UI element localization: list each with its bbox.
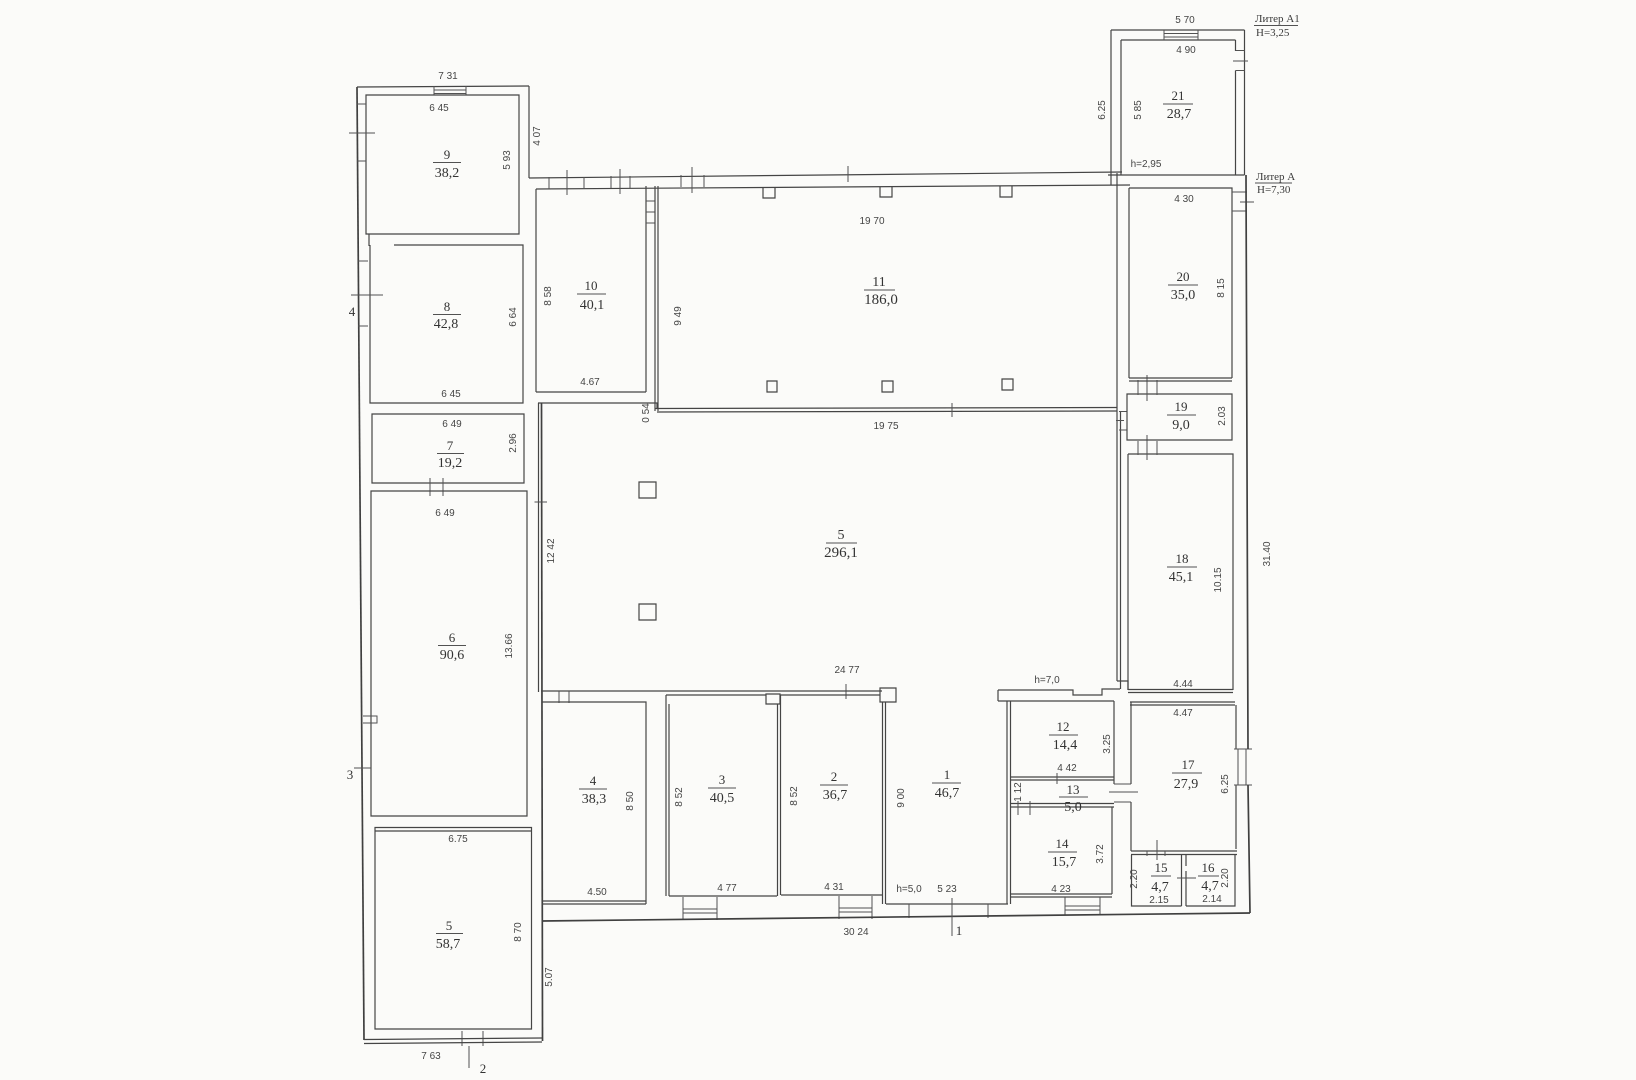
svg-text:5 93: 5 93: [502, 150, 513, 170]
svg-text:6 49: 6 49: [442, 419, 462, 430]
svg-text:1: 1: [944, 767, 951, 782]
svg-text:45,1: 45,1: [1169, 570, 1194, 585]
svg-text:2.20: 2.20: [1129, 869, 1140, 889]
svg-text:10: 10: [585, 278, 598, 293]
svg-text:36,7: 36,7: [823, 788, 848, 803]
svg-text:2.20: 2.20: [1220, 868, 1231, 888]
svg-text:186,0: 186,0: [864, 292, 898, 308]
svg-text:40,5: 40,5: [710, 791, 735, 806]
svg-text:6 45: 6 45: [441, 389, 461, 400]
svg-text:8 52: 8 52: [674, 787, 685, 807]
svg-text:7: 7: [447, 438, 454, 453]
svg-text:2.15: 2.15: [1149, 895, 1169, 906]
svg-text:Н=7,30: Н=7,30: [1257, 184, 1291, 196]
svg-text:35,0: 35,0: [1171, 288, 1196, 303]
svg-text:7 31: 7 31: [438, 71, 458, 82]
svg-text:24 77: 24 77: [834, 665, 859, 676]
svg-text:4 23: 4 23: [1051, 884, 1071, 895]
svg-text:8: 8: [444, 299, 451, 314]
svg-text:14,4: 14,4: [1053, 738, 1078, 753]
svg-text:18: 18: [1176, 551, 1189, 566]
svg-text:4: 4: [349, 304, 356, 319]
svg-text:13: 13: [1067, 782, 1080, 797]
svg-text:12 42: 12 42: [546, 538, 557, 563]
svg-text:4 07: 4 07: [532, 126, 543, 146]
svg-text:15: 15: [1155, 860, 1168, 875]
svg-text:6.25: 6.25: [1097, 100, 1108, 120]
svg-text:h=2,95: h=2,95: [1131, 159, 1162, 170]
svg-text:8 58: 8 58: [543, 286, 554, 306]
svg-text:38,3: 38,3: [582, 792, 607, 807]
svg-text:14: 14: [1056, 836, 1070, 851]
svg-text:19,2: 19,2: [438, 456, 463, 471]
svg-text:3.72: 3.72: [1095, 844, 1106, 864]
svg-text:15,7: 15,7: [1052, 855, 1077, 870]
svg-text:9,0: 9,0: [1172, 418, 1190, 433]
svg-text:4 42: 4 42: [1057, 763, 1077, 774]
svg-text:17: 17: [1182, 757, 1196, 772]
svg-text:6 49: 6 49: [435, 508, 455, 519]
svg-text:7 63: 7 63: [421, 1051, 441, 1062]
svg-text:6.25: 6.25: [1220, 774, 1231, 794]
svg-text:19 75: 19 75: [873, 421, 898, 432]
svg-text:4: 4: [590, 773, 597, 788]
svg-text:46,7: 46,7: [935, 786, 960, 801]
svg-text:38,2: 38,2: [435, 166, 460, 181]
svg-text:40,1: 40,1: [580, 298, 605, 313]
svg-text:6: 6: [449, 630, 456, 645]
svg-text:2: 2: [831, 769, 838, 784]
svg-text:4,7: 4,7: [1201, 879, 1219, 894]
svg-text:3.25: 3.25: [1102, 734, 1113, 754]
svg-text:6 45: 6 45: [429, 103, 449, 114]
svg-text:5 85: 5 85: [1133, 100, 1144, 120]
svg-text:9 49: 9 49: [673, 306, 684, 326]
svg-text:0 54: 0 54: [641, 403, 652, 423]
svg-text:Н=3,25: Н=3,25: [1256, 27, 1290, 39]
svg-text:20: 20: [1177, 269, 1190, 284]
svg-text:5 70: 5 70: [1175, 15, 1195, 26]
svg-text:9: 9: [444, 147, 451, 162]
svg-text:3: 3: [719, 772, 726, 787]
svg-text:1: 1: [956, 923, 963, 938]
svg-text:4 31: 4 31: [824, 882, 844, 893]
svg-text:2.14: 2.14: [1202, 894, 1222, 905]
svg-text:2: 2: [480, 1061, 487, 1076]
svg-text:58,7: 58,7: [436, 937, 461, 952]
svg-text:31.40: 31.40: [1262, 541, 1273, 566]
svg-text:2.03: 2.03: [1217, 406, 1228, 426]
svg-text:19 70: 19 70: [859, 216, 884, 227]
svg-text:42,8: 42,8: [434, 317, 459, 332]
svg-text:19: 19: [1175, 399, 1188, 414]
svg-text:2.96: 2.96: [508, 433, 519, 453]
svg-text:Литер А: Литер А: [1256, 171, 1295, 183]
svg-text:Литер А1: Литер А1: [1255, 13, 1300, 25]
svg-text:4.44: 4.44: [1173, 679, 1193, 690]
svg-text:6.75: 6.75: [448, 834, 468, 845]
svg-text:h=7,0: h=7,0: [1034, 675, 1060, 686]
svg-text:9 00: 9 00: [896, 788, 907, 808]
svg-text:28,7: 28,7: [1167, 107, 1192, 122]
svg-text:4.47: 4.47: [1173, 708, 1193, 719]
svg-text:8 70: 8 70: [513, 922, 524, 942]
svg-text:10.15: 10.15: [1213, 567, 1224, 592]
svg-text:6 64: 6 64: [508, 307, 519, 327]
svg-text:90,6: 90,6: [440, 648, 465, 663]
svg-text:13.66: 13.66: [504, 633, 515, 658]
svg-text:1 12: 1 12: [1013, 782, 1024, 802]
svg-text:5.07: 5.07: [544, 967, 555, 987]
svg-text:5: 5: [838, 528, 845, 543]
svg-text:30 24: 30 24: [843, 927, 868, 938]
svg-text:4.67: 4.67: [580, 377, 600, 388]
svg-text:4,7: 4,7: [1151, 880, 1169, 895]
svg-text:296,1: 296,1: [824, 545, 858, 561]
svg-text:21: 21: [1172, 88, 1185, 103]
svg-text:5 23: 5 23: [937, 884, 957, 895]
svg-text:4.50: 4.50: [587, 887, 607, 898]
svg-text:3: 3: [347, 767, 354, 782]
svg-text:5,0: 5,0: [1064, 800, 1082, 815]
svg-text:8 50: 8 50: [625, 791, 636, 811]
svg-text:4 90: 4 90: [1176, 45, 1196, 56]
svg-text:16: 16: [1202, 860, 1216, 875]
svg-text:12: 12: [1057, 719, 1070, 734]
svg-text:4 30: 4 30: [1174, 194, 1194, 205]
svg-text:4 77: 4 77: [717, 883, 737, 894]
svg-text:8 15: 8 15: [1216, 278, 1227, 298]
svg-text:27,9: 27,9: [1174, 777, 1199, 792]
svg-text:11: 11: [872, 275, 885, 290]
svg-text:8 52: 8 52: [789, 786, 800, 806]
svg-text:5: 5: [446, 918, 453, 933]
svg-text:h=5,0: h=5,0: [896, 884, 922, 895]
